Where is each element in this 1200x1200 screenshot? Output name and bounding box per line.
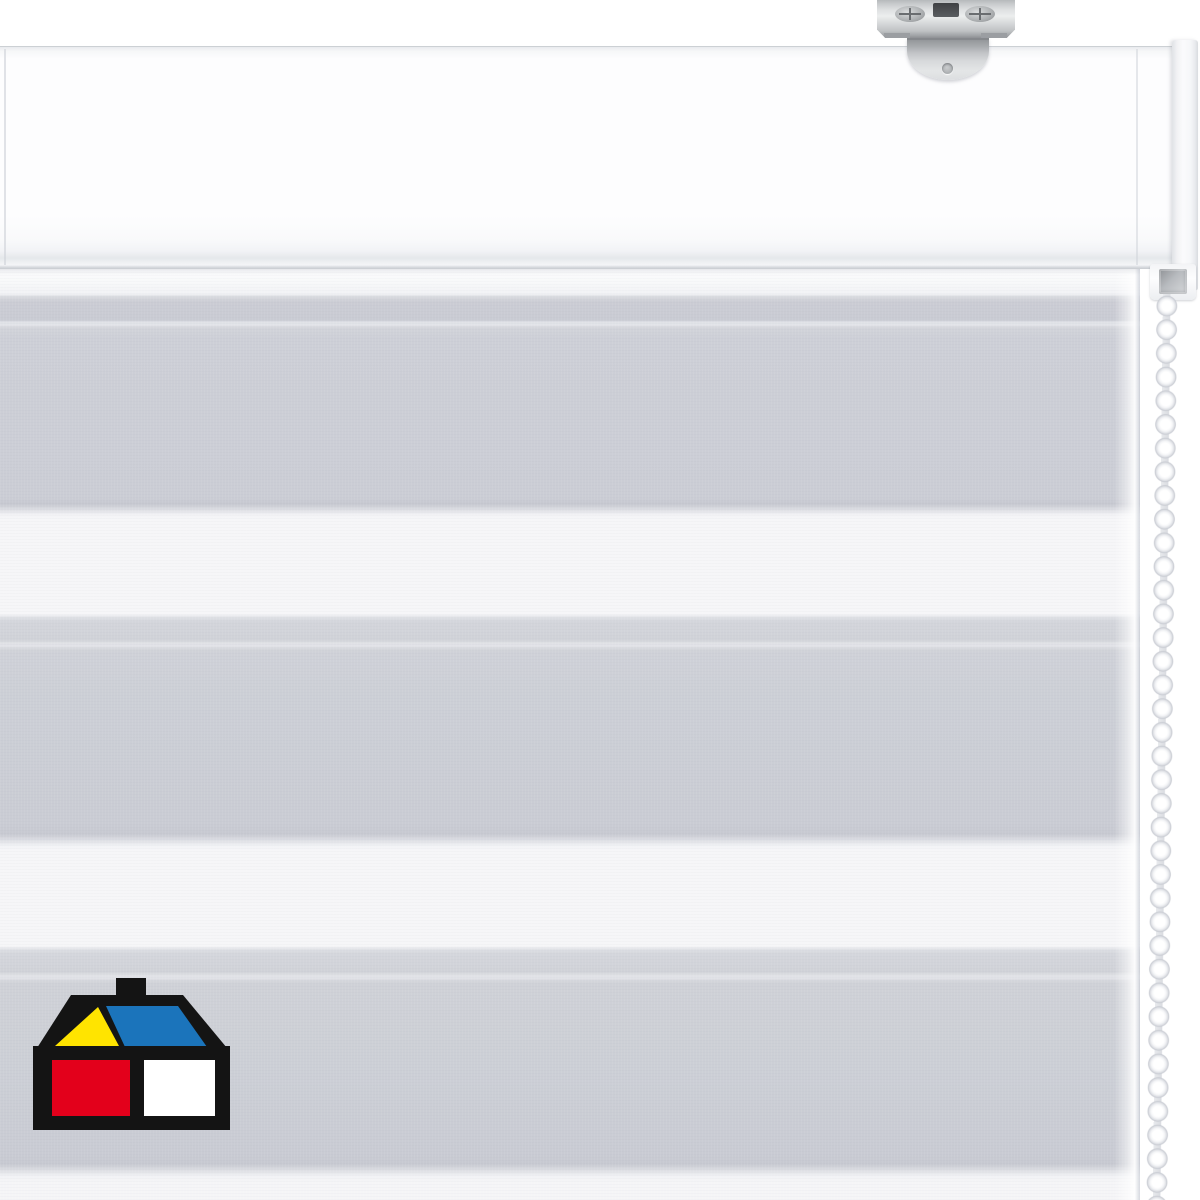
headrail-endcap	[1172, 40, 1198, 290]
headrail-seam	[1136, 49, 1138, 265]
fabric-right-edge-highlight	[1114, 268, 1140, 1200]
headrail-drop-shadow	[0, 268, 1140, 275]
headrail	[0, 46, 1176, 269]
product-photo	[0, 0, 1200, 1200]
bead-chain	[1146, 294, 1178, 1200]
bracket-center-slot	[933, 3, 959, 17]
chain-mechanism-slot	[1159, 269, 1187, 294]
logo-window-red	[52, 1060, 130, 1116]
bracket-screw-right-icon	[965, 6, 995, 22]
mounting-bracket-plate	[877, 0, 1015, 38]
logo-window-white	[144, 1060, 215, 1116]
headrail-left-edge	[4, 49, 6, 265]
brand-logo	[33, 978, 230, 1130]
bracket-screw-left-icon	[895, 6, 925, 22]
bracket-screw-hole	[942, 63, 953, 74]
